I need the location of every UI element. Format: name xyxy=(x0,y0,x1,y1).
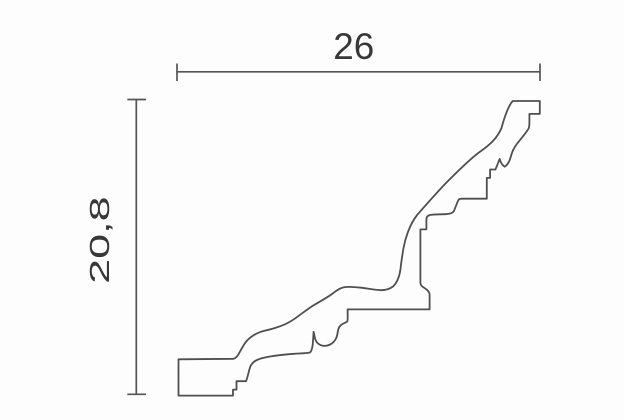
svg-text:26: 26 xyxy=(333,26,374,67)
svg-text:20,8: 20,8 xyxy=(84,196,115,284)
